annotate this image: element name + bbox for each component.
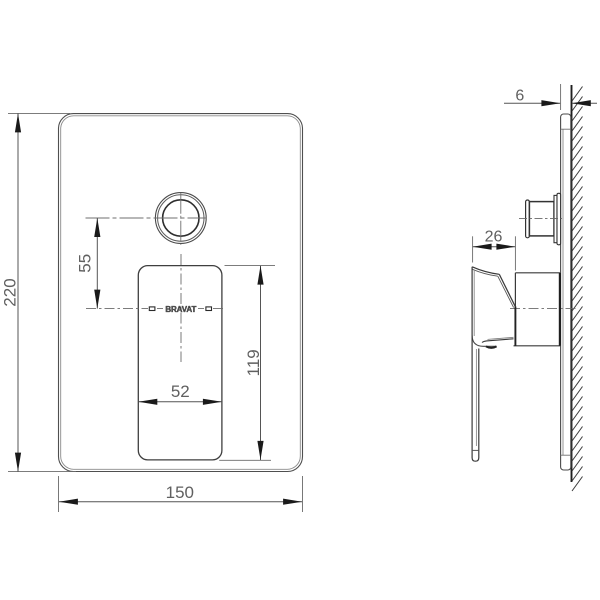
svg-text:55: 55 (76, 254, 95, 273)
svg-text:26: 26 (485, 229, 503, 246)
svg-text:220: 220 (0, 278, 19, 306)
svg-text:119: 119 (244, 349, 263, 376)
svg-text:150: 150 (166, 483, 194, 502)
svg-text:52: 52 (171, 382, 190, 401)
svg-text:BRAVAT: BRAVAT (165, 305, 196, 314)
svg-text:6: 6 (515, 88, 524, 105)
